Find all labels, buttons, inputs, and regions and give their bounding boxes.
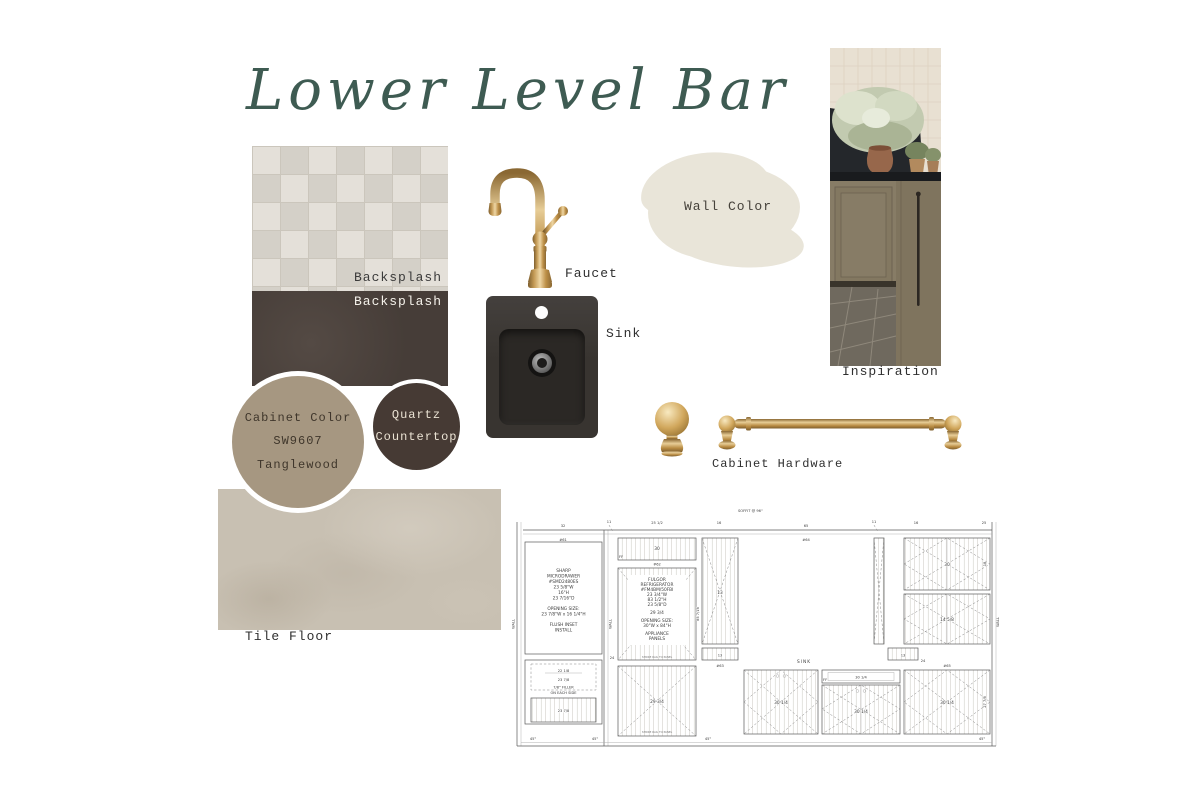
backsplash-label-top: Backsplash [354,270,442,285]
svg-text:16"H: 16"H [558,590,569,596]
svg-text:23 7/8"W x 16 1/4"H: 23 7/8"W x 16 1/4"H [541,612,585,618]
cabinet-hardware-label: Cabinet Hardware [712,457,843,471]
svg-text:29 3/4: 29 3/4 [650,610,664,616]
cabinet-pull-image [710,404,970,456]
pull-illustration [710,404,970,456]
inspiration-label: Inspiration [842,364,939,379]
svg-text:WALL: WALL [512,619,516,629]
svg-text:23 7/8: 23 7/8 [558,709,570,713]
svg-text:45°: 45° [592,737,599,741]
microdrawer-section: SHARP MICRODRAWER #SMD2480ES 23 5/8"W 16… [525,542,602,724]
left-door-panel [841,193,886,277]
quartz-line1: Quartz [375,405,457,427]
svg-text:85 7/16: 85 7/16 [696,606,700,620]
svg-text:65: 65 [804,524,809,528]
svg-text:7/8" FILLER: 7/8" FILLER [553,686,574,690]
sink-basin [499,329,585,425]
knob-neck [667,435,678,439]
svg-text:30: 30 [944,562,950,568]
wall-color-label: Wall Color [684,199,772,214]
quartz-countertop-chip: Quartz Countertop [369,379,464,474]
pull-end-finial [719,416,752,450]
cabinet-elevation-drawing: SOFFIT @ 96" 32 11 25 1/2 16 65 11 16 25… [512,502,1000,752]
faucet-handle-lever [544,213,561,233]
svg-text:23 5/8"W: 23 5/8"W [554,585,575,591]
sink-drain [528,349,556,377]
svg-text:23 5/8"D: 23 5/8"D [647,602,667,608]
backsplash-swatch: Backsplash Backsplash [252,146,448,386]
svg-text:WALL: WALL [996,617,1000,627]
svg-text:#61: #61 [559,538,567,542]
svg-text:11: 11 [607,520,612,524]
inspiration-scene [830,48,941,366]
tile-floor-label: Tile Floor [245,629,333,644]
svg-text:SHARP: SHARP [556,568,571,574]
cabinet-color-chip: Cabinet Color SW9607 Tanglewood [227,371,369,513]
svg-text:30 1/4: 30 1/4 [855,676,867,680]
refrigerator-section: 30 FF #62 FULGOR REFRIGERATOR #FM4BM/50F… [618,538,700,736]
svg-text:ON EACH SIDE: ON EACH SIDE [550,691,577,695]
pull-bar [734,419,946,429]
svg-text:#63: #63 [716,664,724,668]
svg-text:22 1/8: 22 1/8 [558,669,570,673]
svg-text:16: 16 [717,521,722,525]
svg-text:PANELS: PANELS [649,636,666,642]
svg-text:#64: #64 [802,538,810,542]
knob-ball [655,402,689,436]
svg-text:#SMD2480ES: #SMD2480ES [549,579,579,585]
backsplash-label-bottom: Backsplash [354,294,442,309]
svg-text:FLUSH INSET: FLUSH INSET [550,622,578,628]
svg-text:OPENING SIZE:: OPENING SIZE: [547,606,579,612]
page-title: Lower Level Bar [246,58,766,123]
faucet-gooseneck [495,173,540,278]
faucet-image [478,156,573,296]
knob-base [662,451,683,457]
wall-color-swatch: Wall Color [648,163,800,259]
svg-text:13: 13 [718,654,723,658]
svg-text:24: 24 [921,659,926,663]
svg-text:32: 32 [561,524,566,528]
svg-text:#62: #62 [653,563,661,567]
svg-text:25 1/2: 25 1/2 [651,521,663,525]
svg-text:45°: 45° [979,737,986,741]
tile-floor-swatch [218,489,501,630]
svg-text:MICRODRAWER: MICRODRAWER [547,574,580,580]
handle-mount [916,192,921,197]
svg-text:29 3/4: 29 3/4 [650,699,664,705]
quartz-line2: Countertop [375,427,457,449]
inspiration-photo [830,48,941,366]
mood-board: Lower Level Bar Backsplash Backsplash [0,0,1200,800]
sink-drain-core [537,358,547,368]
faucet-illustration [478,156,573,296]
cabinet-long-handle [917,194,920,306]
svg-text:STRIKE RAIL TO PANEL: STRIKE RAIL TO PANEL [642,730,673,734]
svg-text:30 1/4: 30 1/4 [940,700,954,706]
cabinet-color-line1: Cabinet Color [245,407,352,430]
knob-illustration [650,400,694,458]
knob-foot [661,439,683,452]
svg-text:30 1/4: 30 1/4 [854,709,868,715]
tall-cabinet-left: 13 13 #63 [702,538,738,668]
svg-text:#65: #65 [943,664,951,668]
terracotta-vase [867,145,893,174]
svg-text:11: 11 [872,520,877,524]
svg-text:13: 13 [717,590,723,596]
svg-text:13: 13 [901,654,906,658]
svg-text:27 7/8: 27 7/8 [983,696,987,708]
faucet-handle-knob [558,206,568,216]
faucet-joint [533,232,548,247]
faucet-label: Faucet [565,266,618,281]
svg-text:30: 30 [654,546,660,552]
svg-text:16: 16 [914,521,919,525]
svg-text:FF: FF [619,555,623,559]
svg-text:STRIKE RAIL TO PANEL: STRIKE RAIL TO PANEL [642,655,673,659]
svg-text:INSTALL: INSTALL [555,628,573,634]
flower-bouquet [832,87,924,153]
faucet-base [528,281,552,288]
svg-text:24: 24 [610,656,615,660]
sink-callout: SINK [797,659,811,665]
svg-text:FF: FF [823,678,827,682]
svg-text:30"W x 84"H: 30"W x 84"H [643,623,671,629]
svg-text:45°: 45° [705,737,712,741]
svg-text:25: 25 [982,521,987,525]
countertop [830,172,941,181]
svg-text:23 7/16"D: 23 7/16"D [553,596,575,602]
base-cabinet-run: 30 1/4 30 1/4 FF 30 1/4 30 1/4 #65 [744,664,990,734]
toe-kick [830,281,896,287]
faucet-spout-tip [489,203,502,216]
svg-text:30 1/4: 30 1/4 [774,700,788,706]
sink-faucet-hole [535,306,548,319]
cabinet-color-line2: SW9607 [245,430,352,453]
svg-text:14 5/8: 14 5/8 [940,617,954,623]
svg-text:45°: 45° [530,737,537,741]
svg-text:WALL: WALL [609,619,613,629]
sink-image [486,296,598,438]
sink-label: Sink [606,326,641,341]
cabinet-color-line3: Tanglewood [245,454,352,477]
svg-text:18: 18 [983,561,987,566]
elevation-svg: SOFFIT @ 96" 32 11 25 1/2 16 65 11 16 25… [512,502,1000,752]
svg-text:23 7/8: 23 7/8 [558,678,570,682]
cabinet-knob-image [650,400,694,458]
soffit-note: SOFFIT @ 96" [738,509,763,513]
